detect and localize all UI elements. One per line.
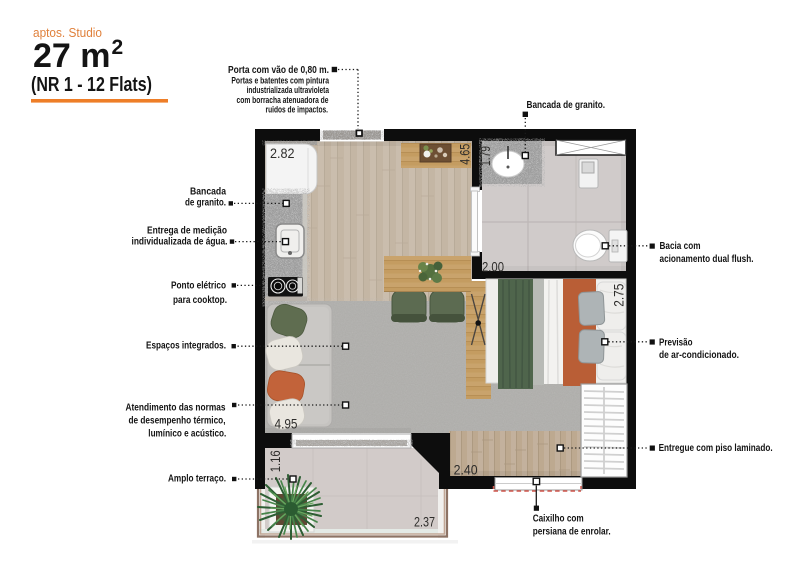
svg-text:(NR 1 - 12 Flats): (NR 1 - 12 Flats) (31, 74, 152, 96)
svg-text:ruidos de impactos.: ruidos de impactos. (266, 103, 329, 114)
svg-text:Entrega de medição: Entrega de medição (147, 226, 227, 237)
svg-text:persiana de enrolar.: persiana de enrolar. (533, 526, 611, 537)
svg-text:4.65: 4.65 (456, 144, 472, 165)
svg-text:27 m: 27 m (33, 37, 111, 75)
svg-text:Caixilho com: Caixilho com (533, 513, 584, 524)
svg-text:Espaços integrados.: Espaços integrados. (146, 341, 226, 352)
svg-text:2.40: 2.40 (454, 461, 478, 477)
svg-text:Atendimento das normas: Atendimento das normas (126, 403, 226, 414)
svg-text:Previsão: Previsão (659, 337, 693, 348)
svg-text:de ar-condicionado.: de ar-condicionado. (659, 350, 739, 361)
svg-text:Ponto elétrico: Ponto elétrico (171, 281, 226, 292)
svg-text:Bacia com: Bacia com (660, 241, 701, 252)
svg-text:acionamento dual flush.: acionamento dual flush. (660, 254, 754, 265)
svg-text:de granito.: de granito. (185, 198, 226, 209)
svg-text:Bancada de granito.: Bancada de granito. (527, 100, 606, 111)
svg-text:lumínico e acústico.: lumínico e acústico. (148, 429, 226, 440)
svg-text:de desempenho térmico,: de desempenho térmico, (129, 416, 226, 427)
svg-text:individualizada de água.: individualizada de água. (132, 237, 228, 248)
svg-text:1.16: 1.16 (267, 450, 283, 472)
svg-text:para cooktop.: para cooktop. (173, 295, 227, 306)
svg-text:Entregue com piso laminado.: Entregue com piso laminado. (659, 443, 773, 454)
svg-text:1.79: 1.79 (477, 146, 493, 166)
svg-text:2.82: 2.82 (270, 145, 295, 161)
svg-text:2.75: 2.75 (611, 284, 627, 307)
svg-text:2.00: 2.00 (482, 258, 504, 274)
svg-text:2: 2 (112, 36, 124, 59)
svg-text:Amplo terraço.: Amplo terraço. (168, 474, 226, 485)
svg-text:2.37: 2.37 (414, 514, 435, 530)
svg-text:4.95: 4.95 (275, 416, 298, 432)
svg-text:Bancada: Bancada (190, 187, 226, 198)
